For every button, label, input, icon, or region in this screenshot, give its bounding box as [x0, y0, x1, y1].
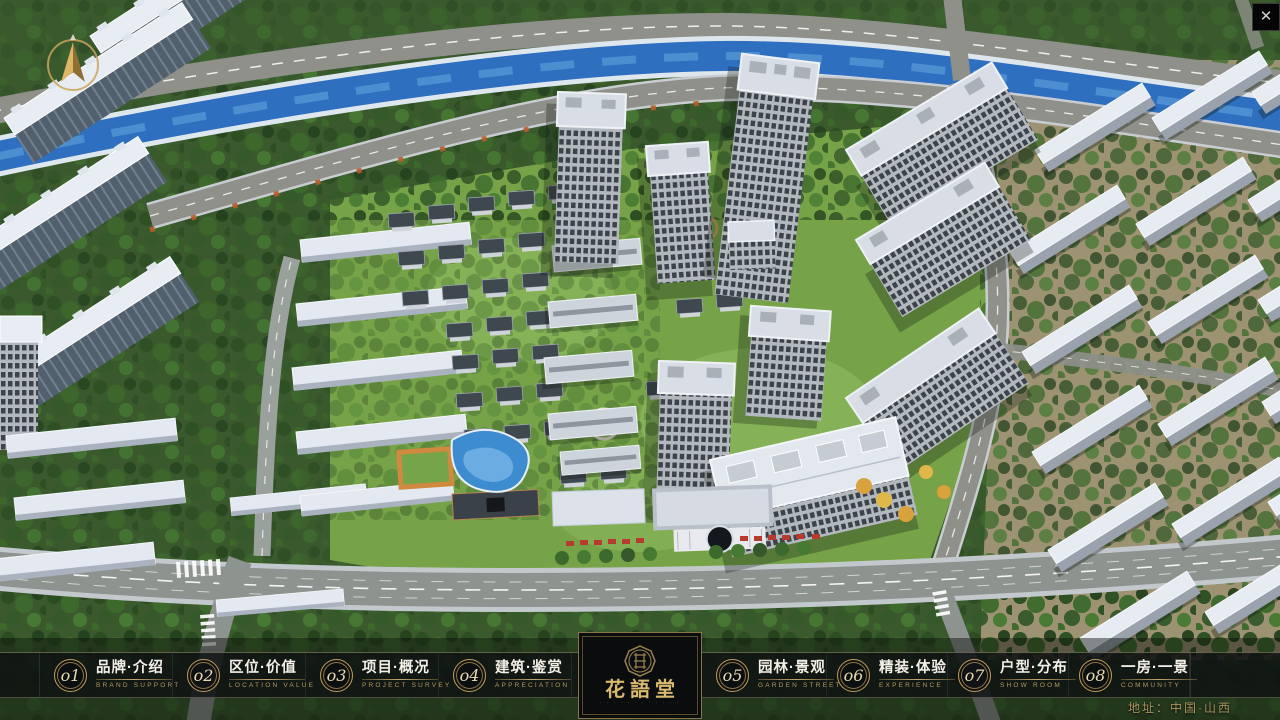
project-name: 花語堂	[600, 679, 680, 699]
nav-number-badge-3: o3	[320, 659, 353, 692]
nav-number-badge-1: o1	[54, 659, 87, 692]
gold-divider	[229, 679, 305, 680]
nav-label-zh: 园林·景观	[758, 661, 834, 676]
nav-number-badge-6: o6	[837, 659, 870, 692]
nav-number-badge-4: o4	[453, 659, 486, 692]
project-name-fineprint: · · · · · · · · · · · ·	[599, 701, 680, 706]
project-address: 地址：中国·山西	[1128, 699, 1232, 716]
nav-item-garden-landscape[interactable]: o5 园林·景观GARDEN STREET	[706, 653, 827, 697]
nav-label-zh: 项目·概况	[362, 661, 438, 676]
nav-label-en: LOCATION VALUE	[229, 683, 305, 690]
nav-label-en: BRAND SUPPORT	[96, 683, 172, 690]
nav-label-zh: 户型·分布	[1000, 661, 1076, 676]
close-button[interactable]: ✕	[1252, 3, 1280, 31]
nav-label-en: EXPERIENCE	[879, 683, 955, 690]
nav-item-floorplan-distribution[interactable]: o7 户型·分布SHOW ROOM	[948, 653, 1069, 697]
nav-label-zh: 精装·体验	[879, 661, 955, 676]
nav-label-en: COMMUNITY	[1121, 683, 1197, 690]
gold-divider	[1000, 679, 1076, 680]
nav-left-pad	[0, 653, 40, 697]
nav-item-brand-intro[interactable]: o1 品牌·介绍BRAND SUPPORT	[40, 653, 173, 697]
gold-divider	[879, 679, 955, 680]
nav-item-architecture[interactable]: o4 建筑·鉴赏APPRECIATION	[439, 653, 572, 697]
clubhouse	[396, 446, 455, 490]
gold-divider	[96, 679, 172, 680]
nav-item-finishing-experience[interactable]: o6 精装·体验EXPERIENCE	[827, 653, 948, 697]
masterplan-3d-render[interactable]	[0, 0, 1280, 720]
entrance-gate	[452, 489, 539, 519]
nav-label-en: GARDEN STREET	[758, 683, 834, 690]
logo-seal-icon	[624, 645, 656, 677]
nav-label-zh: 区位·价值	[229, 661, 305, 676]
nav-number-badge-8: o8	[1079, 659, 1112, 692]
nav-number-badge-5: o5	[716, 659, 749, 692]
nav-number-badge-7: o7	[958, 659, 991, 692]
gold-divider	[362, 679, 438, 680]
nav-item-room-view[interactable]: o8 一房·一景COMMUNITY	[1069, 653, 1190, 697]
presentation-window: ✕ o1 品牌·介绍BRAND SUPPORT o2 区位·价值LOCATION…	[0, 0, 1280, 720]
nav-item-project-survey[interactable]: o3 项目·概况PROJECT SURVEY	[306, 653, 439, 697]
north-compass-icon	[42, 32, 104, 94]
nav-label-zh: 品牌·介绍	[96, 661, 172, 676]
gold-divider	[495, 679, 571, 680]
nav-item-location-value[interactable]: o2 区位·价值LOCATION VALUE	[173, 653, 306, 697]
nav-label-en: PROJECT SURVEY	[362, 683, 438, 690]
gold-divider	[1121, 679, 1197, 680]
nav-label-zh: 一房·一景	[1121, 661, 1197, 676]
nav-number-badge-2: o2	[187, 659, 220, 692]
nav-label-zh: 建筑·鉴赏	[495, 661, 571, 676]
nav-label-en: APPRECIATION	[495, 683, 571, 690]
project-logo-plaque[interactable]: 花語堂 · · · · · · · · · · · ·	[578, 632, 702, 719]
nav-label-en: SHOW ROOM	[1000, 683, 1076, 690]
nav-right-pad	[1190, 653, 1280, 697]
gold-divider	[758, 679, 834, 680]
